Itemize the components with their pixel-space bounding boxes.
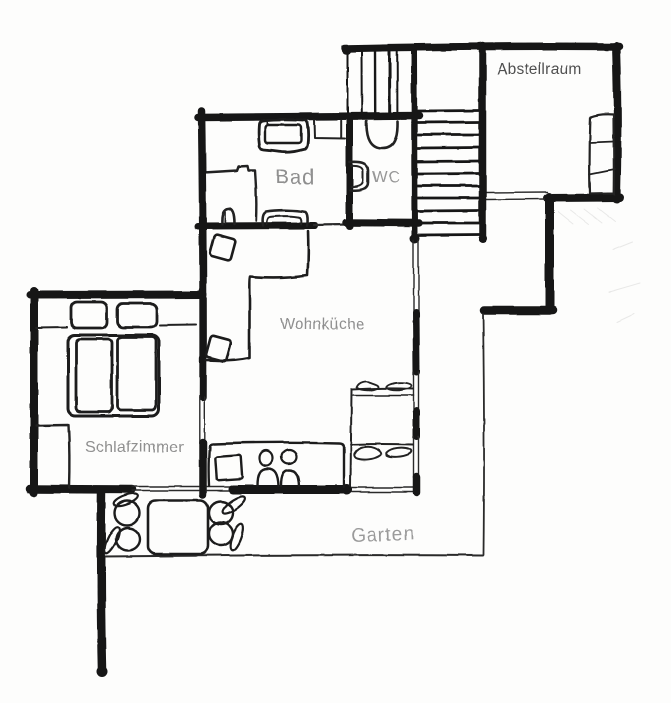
svg-text:Wohnküche: Wohnküche [280,316,365,333]
svg-text:Schlafzimmer: Schlafzimmer [85,439,185,456]
svg-text:Abstellraum: Abstellraum [497,61,582,78]
svg-text:Bad: Bad [275,166,315,189]
svg-text:Garten: Garten [350,524,415,547]
svg-text:WC: WC [372,169,400,186]
